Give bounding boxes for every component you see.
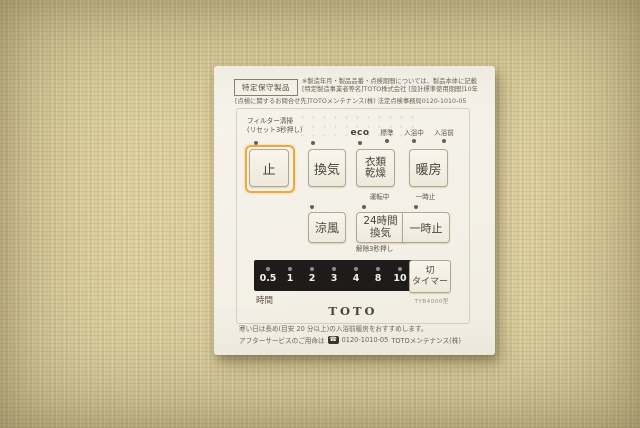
timer-step: 0.5 bbox=[257, 260, 279, 291]
led-eco bbox=[358, 141, 362, 145]
mode-label-bathing: 入浴中 bbox=[400, 129, 428, 138]
service-phone-number: 0120-1010-05 bbox=[342, 336, 389, 344]
timer-value: 4 bbox=[353, 273, 360, 284]
release-hint-label: 解除3秒押し bbox=[356, 245, 416, 254]
timer-step: 3 bbox=[323, 260, 345, 291]
timer-led bbox=[310, 267, 314, 271]
footer-advice-line: 寒い日は長め(目安 20 分以上)の入浴前暖房をおすすめします。 bbox=[239, 323, 428, 333]
toto-logo: TOTO bbox=[237, 304, 469, 318]
timer-led bbox=[376, 267, 380, 271]
pause-button[interactable]: 一時止 bbox=[402, 212, 450, 243]
led-standard bbox=[385, 139, 389, 143]
led-ventilation bbox=[311, 141, 315, 145]
stop-button[interactable]: 止 bbox=[249, 149, 289, 187]
ventilation-button[interactable]: 換気 bbox=[308, 149, 346, 187]
timer-off-button[interactable]: 切 タイマー bbox=[409, 260, 451, 293]
eco-label: eco bbox=[345, 128, 375, 138]
led-bathing bbox=[412, 139, 416, 143]
notice-line-2: [特定製造事業者等名]TOTO株式会社 [設計標準使用期間]10年 bbox=[302, 86, 478, 94]
led-prebath bbox=[442, 139, 446, 143]
photo-scene: 特定保守製品 ※製造年月・製品品番・点検期間については、製品本体に記載 [特定製… bbox=[0, 0, 640, 428]
footer-service-line: アフターサービスのご用命は ☎ 0120-1010-05 TOTOメンテナンス(… bbox=[239, 335, 461, 345]
notice-line-1: ※製造年月・製品品番・点検期間については、製品本体に記載 bbox=[302, 78, 478, 86]
timer-led bbox=[266, 267, 270, 271]
cool-breeze-button[interactable]: 涼風 bbox=[308, 212, 346, 243]
mode-label-standard: 標準 bbox=[375, 129, 399, 138]
certification-label: 特定保守製品 bbox=[234, 79, 298, 96]
timer-led bbox=[398, 267, 402, 271]
timer-value: 10 bbox=[393, 273, 406, 284]
timer-step: 4 bbox=[345, 260, 367, 291]
timer-step: 1 bbox=[279, 260, 301, 291]
footer-service-suffix: TOTOメンテナンス(株) bbox=[391, 335, 461, 345]
timer-value: 3 bbox=[331, 273, 338, 284]
heating-button[interactable]: 暖房 bbox=[409, 149, 448, 187]
timer-step: 10 bbox=[389, 260, 411, 291]
pause-label: 一時止 bbox=[403, 193, 448, 202]
timer-value: 0.5 bbox=[260, 273, 277, 284]
timer-value: 1 bbox=[287, 273, 294, 284]
filter-clean-label: フィルター清掃 (リセット3秒押し) bbox=[247, 117, 303, 134]
led-24h-running bbox=[362, 205, 366, 209]
mode-label-prebath: 入浴前 bbox=[430, 129, 458, 138]
timer-value: 2 bbox=[309, 273, 316, 284]
timer-value: 8 bbox=[375, 273, 382, 284]
timer-led bbox=[288, 267, 292, 271]
phone-icon: ☎ bbox=[328, 336, 339, 344]
led-cool-breeze bbox=[310, 205, 314, 209]
led-pause bbox=[414, 205, 418, 209]
running-label: 運転中 bbox=[356, 193, 403, 202]
timer-step: 8 bbox=[367, 260, 389, 291]
timer-led bbox=[332, 267, 336, 271]
control-frame: フィルター清掃 (リセット3秒押し) eco 標準 入浴中 入浴前 止 換気 衣… bbox=[236, 108, 470, 324]
bathroom-control-panel: 特定保守製品 ※製造年月・製品品番・点検期間については、製品本体に記載 [特定製… bbox=[214, 66, 495, 355]
product-notice-lines: ※製造年月・製品品番・点検期間については、製品本体に記載 [特定製造事業者等名]… bbox=[302, 78, 478, 94]
vent-24h-button[interactable]: 24時間 換気 bbox=[356, 212, 405, 243]
clothes-drying-button[interactable]: 衣類 乾燥 bbox=[356, 149, 395, 187]
timer-scale-bar: 0.5 1 2 3 4 bbox=[254, 260, 414, 291]
notice-line-3: [点検に関するお問合せ先]TOTOメンテナンス(株) 法定点検事務局0120-1… bbox=[235, 96, 485, 105]
timer-step: 2 bbox=[301, 260, 323, 291]
timer-led bbox=[354, 267, 358, 271]
footer-service-prefix: アフターサービスのご用命は bbox=[239, 335, 325, 345]
